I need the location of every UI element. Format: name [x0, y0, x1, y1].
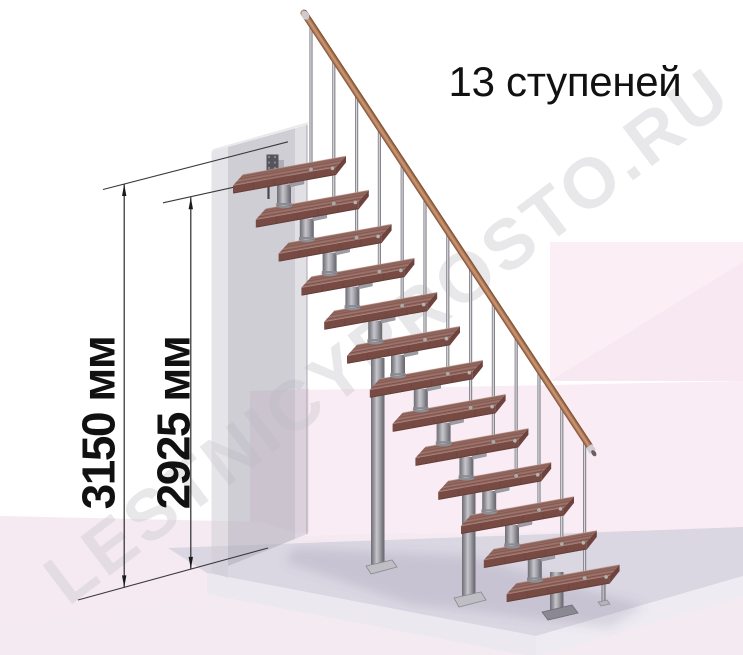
svg-text:3150 мм: 3150 мм — [72, 337, 124, 510]
svg-text:13 ступеней: 13 ступеней — [449, 58, 682, 105]
svg-text:2925 мм: 2925 мм — [147, 337, 199, 510]
